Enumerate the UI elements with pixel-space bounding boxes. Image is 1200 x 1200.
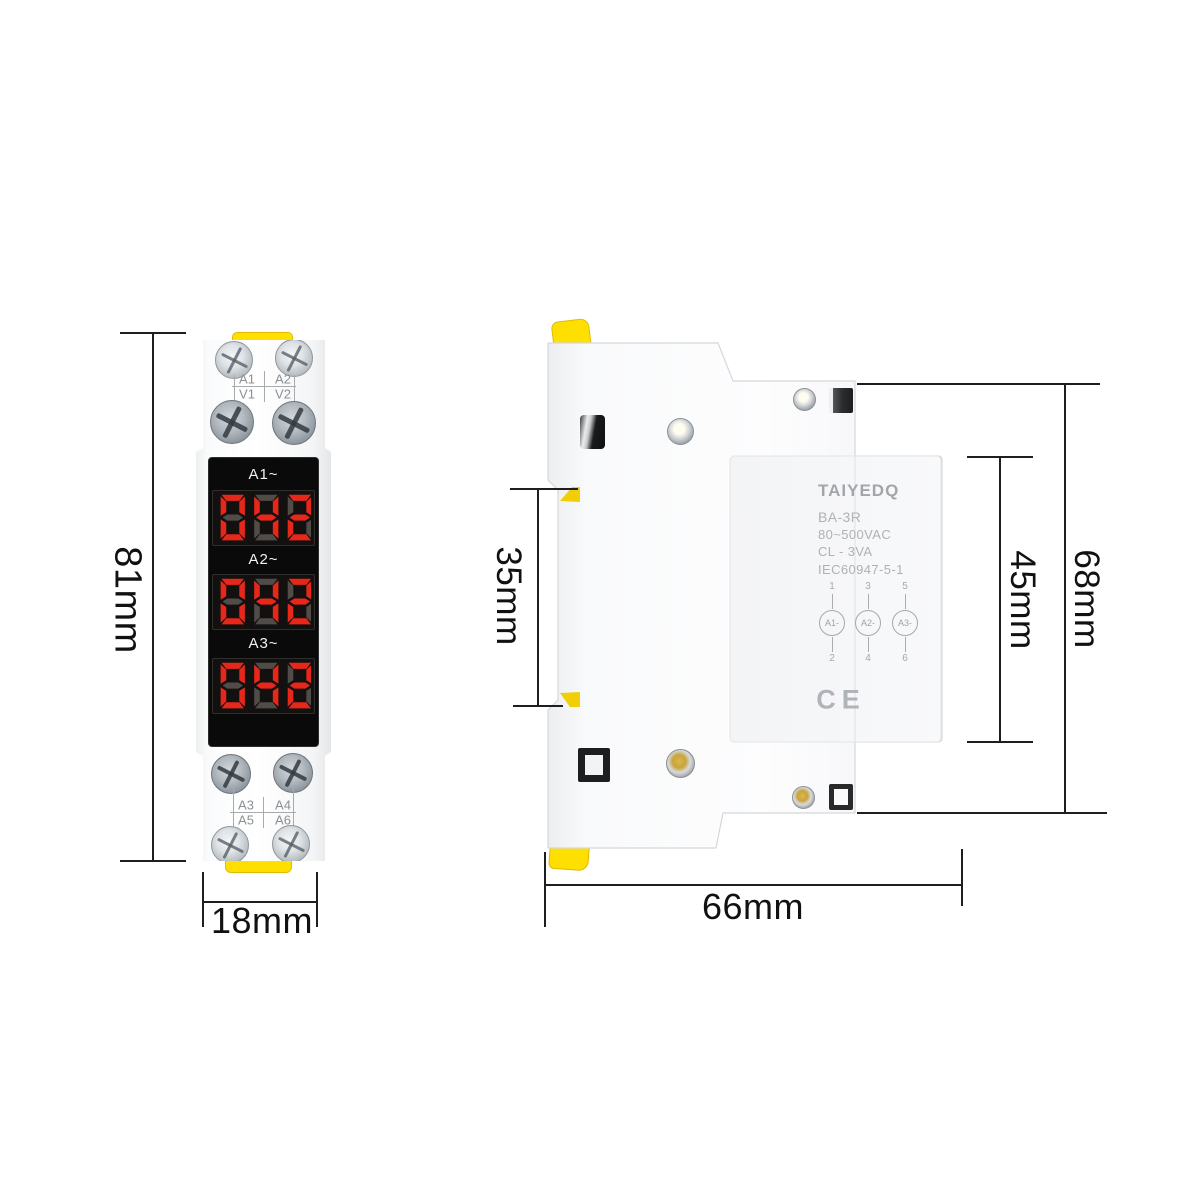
latch-slot	[580, 415, 605, 449]
ce-certification-mark: CE	[816, 685, 866, 716]
model-number: BA-3R	[818, 509, 861, 525]
terminal-wire	[868, 594, 869, 609]
dim-81-label: 81mm	[106, 546, 149, 654]
terminal-wire	[832, 594, 833, 609]
dim-68-label: 68mm	[1066, 549, 1106, 648]
terminal-screw	[211, 826, 249, 864]
dim-35-tick-bottom	[513, 705, 563, 707]
terminal-wire	[868, 637, 869, 652]
terminal-diagram-column: 3 A2- 4	[855, 581, 881, 665]
dim-18-tick-left	[202, 872, 204, 927]
meter-front-view: A1 A2 V1 V2 A1~ A2~ A3~	[190, 325, 340, 881]
terminal-wire	[905, 594, 906, 609]
terminal-label: A1	[239, 372, 255, 387]
dim-18-tick-right	[316, 872, 318, 927]
dim-45-line	[999, 456, 1001, 742]
terminal-label: V2	[275, 387, 291, 402]
terminal-label: A2	[275, 372, 291, 387]
terminal-screw	[272, 825, 310, 863]
rivet	[666, 749, 695, 778]
latch-slot	[829, 784, 853, 810]
terminal-number: 3	[865, 581, 871, 593]
product-dimension-diagram: A1 A2 V1 V2 A1~ A2~ A3~	[0, 0, 1200, 1200]
dim-68-tick-top	[857, 383, 1100, 385]
dim-68-tick-bottom	[857, 812, 1107, 814]
dim-81-tick-top	[120, 332, 186, 334]
voltage-range: 80~500VAC	[818, 527, 891, 542]
dim-35-label: 35mm	[488, 546, 528, 645]
dim-45-label: 45mm	[1002, 550, 1042, 649]
seven-segment-display	[212, 490, 315, 546]
dim-35-tick-top	[510, 488, 578, 490]
meter-side-view: TAIYEDQ BA-3R 80~500VAC CL - 3VA IEC6094…	[540, 315, 950, 875]
standard-code: IEC60947-5-1	[818, 562, 904, 577]
terminal-wire	[905, 637, 906, 652]
terminal-number: 4	[865, 653, 871, 665]
dim-66-tick-left	[544, 852, 546, 927]
led-display-panel: A1~ A2~ A3~	[208, 457, 319, 747]
dim-81-line	[152, 332, 154, 861]
display-label: A1~	[209, 466, 318, 483]
terminal-diagram-column: 5 A3- 6	[892, 581, 918, 665]
terminal-number: 6	[902, 653, 908, 665]
terminal-circle: A2-	[855, 610, 881, 636]
dim-45-tick-top	[967, 456, 1033, 458]
seven-segment-display	[212, 574, 315, 630]
terminal-number: 1	[829, 581, 835, 593]
dim-18-label: 18mm	[211, 900, 313, 942]
terminal-screw-large	[211, 754, 251, 794]
rivet	[793, 388, 816, 411]
power-rating: CL - 3VA	[818, 544, 873, 559]
terminal-number: 2	[829, 653, 835, 665]
terminal-number: 5	[902, 581, 908, 593]
dim-81-tick-bottom	[120, 860, 186, 862]
terminal-label: V1	[239, 387, 255, 402]
latch-slot	[578, 748, 610, 782]
terminal-diagram-column: 1 A1- 2	[819, 581, 845, 665]
meter-front-body: A1 A2 V1 V2 A1~ A2~ A3~	[190, 325, 340, 881]
dim-66-label: 66mm	[702, 886, 804, 928]
rivet	[792, 786, 815, 809]
brand-name: TAIYEDQ	[818, 481, 899, 501]
terminal-label: A5	[238, 813, 254, 828]
terminal-wire	[832, 637, 833, 652]
dim-35-line	[537, 488, 539, 706]
latch-slot	[829, 388, 853, 413]
terminal-circle: A1-	[819, 610, 845, 636]
side-body-outline	[540, 315, 950, 875]
display-label: A2~	[209, 551, 318, 568]
terminal-label: A3	[238, 798, 254, 813]
terminal-screw-large	[210, 400, 254, 444]
display-label: A3~	[209, 635, 318, 652]
terminal-screw-large	[272, 401, 316, 445]
rivet	[667, 418, 694, 445]
terminal-circle: A3-	[892, 610, 918, 636]
terminal-label: A4	[275, 798, 291, 813]
dim-66-tick-right	[961, 849, 963, 906]
seven-segment-display	[212, 658, 315, 714]
dim-45-tick-bottom	[967, 741, 1033, 743]
